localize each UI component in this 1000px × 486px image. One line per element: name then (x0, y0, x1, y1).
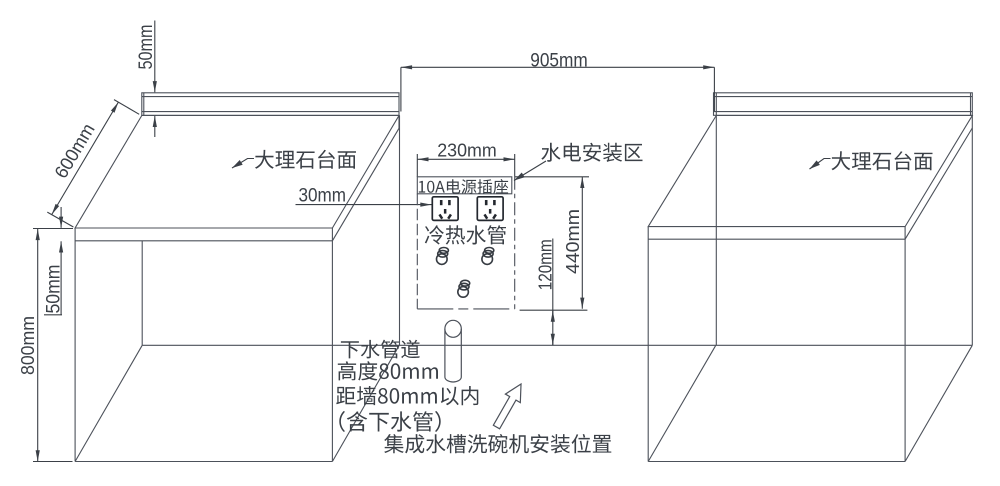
svg-text:230mm: 230mm (437, 140, 497, 161)
svg-text:600mm: 600mm (50, 120, 99, 182)
svg-text:120mm: 120mm (535, 239, 556, 290)
svg-text:440mm: 440mm (562, 209, 583, 274)
svg-text:50mm: 50mm (135, 25, 157, 70)
svg-text:800mm: 800mm (17, 316, 38, 375)
svg-text:905mm: 905mm (530, 50, 588, 71)
svg-text:30mm: 30mm (299, 184, 347, 206)
svg-text:50mm: 50mm (43, 265, 65, 314)
